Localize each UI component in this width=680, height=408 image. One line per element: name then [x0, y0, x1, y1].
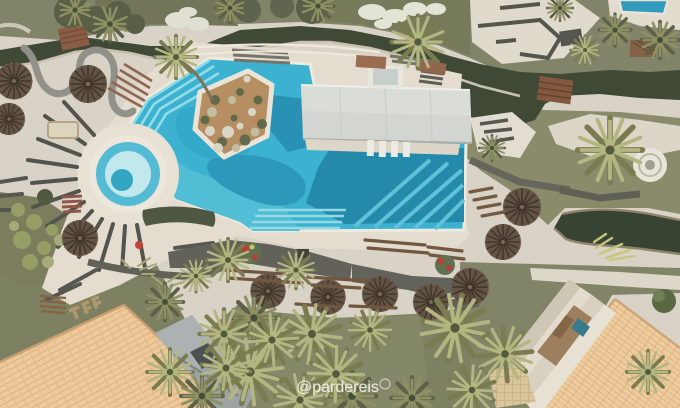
svg-text:@pardereis: @pardereis	[296, 379, 379, 396]
